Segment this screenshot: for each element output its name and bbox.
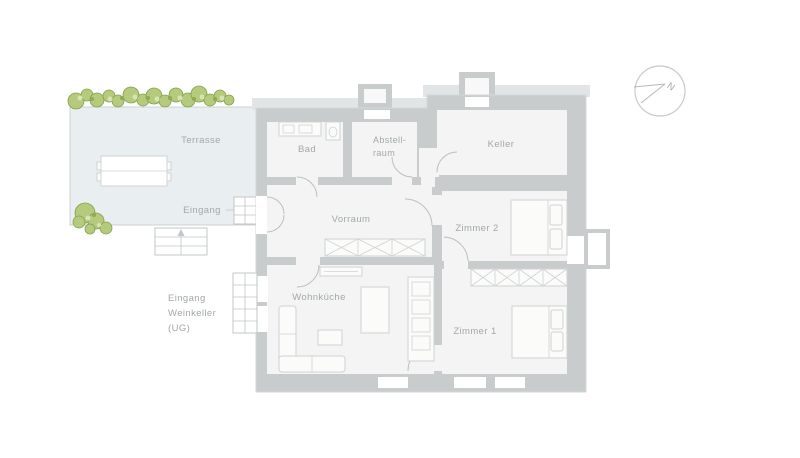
coffee-table	[318, 330, 342, 345]
label-zimmer2: Zimmer 2	[455, 223, 498, 234]
window	[378, 377, 408, 388]
label-terrasse: Terrasse	[181, 135, 221, 146]
keller-vestibule	[419, 148, 439, 177]
label-abstellraum-line2: raum	[373, 148, 395, 158]
window	[364, 110, 390, 119]
label-weinkeller-line3: (UG)	[168, 323, 190, 334]
label-eingang: Eingang	[183, 205, 221, 216]
kitchen-table	[361, 287, 389, 333]
kitchen-shelf	[320, 267, 362, 276]
window	[465, 97, 489, 107]
floor-plan-drawing: N Terrasse Eingang Bad Abstell- raum Kel…	[0, 0, 800, 458]
label-weinkeller-line2: Weinkeller	[168, 308, 216, 319]
compass-north-label: N	[665, 80, 677, 93]
weinkeller-stairs-south	[155, 228, 207, 255]
floor-plan-page: N Terrasse Eingang Bad Abstell- raum Kel…	[0, 0, 800, 458]
label-abstellraum-line1: Abstell-	[373, 135, 406, 145]
label-vorraum: Vorraum	[332, 214, 371, 225]
window	[495, 377, 525, 388]
label-wohnkueche: Wohnküche	[292, 292, 346, 303]
kitchen-counter	[408, 277, 434, 361]
weinkeller-annotation: Eingang Weinkeller (UG)	[168, 293, 216, 334]
bed-zimmer1	[512, 306, 567, 358]
label-keller: Keller	[488, 139, 515, 150]
trees-row	[68, 86, 234, 109]
zimmer1-wardrobe	[471, 269, 567, 286]
chimney	[358, 84, 392, 110]
main-entrance-opening	[256, 196, 267, 234]
weinkeller-stairs-west	[233, 273, 257, 333]
compass-rose: N	[634, 66, 685, 116]
label-weinkeller-line1: Eingang	[168, 293, 206, 304]
terrace-table	[97, 156, 171, 186]
label-bad: Bad	[298, 144, 316, 155]
terrace-area	[70, 107, 258, 255]
window	[454, 377, 486, 388]
bed-zimmer2	[511, 200, 567, 255]
vorraum-wardrobe	[325, 239, 425, 256]
label-zimmer1: Zimmer 1	[453, 326, 496, 337]
